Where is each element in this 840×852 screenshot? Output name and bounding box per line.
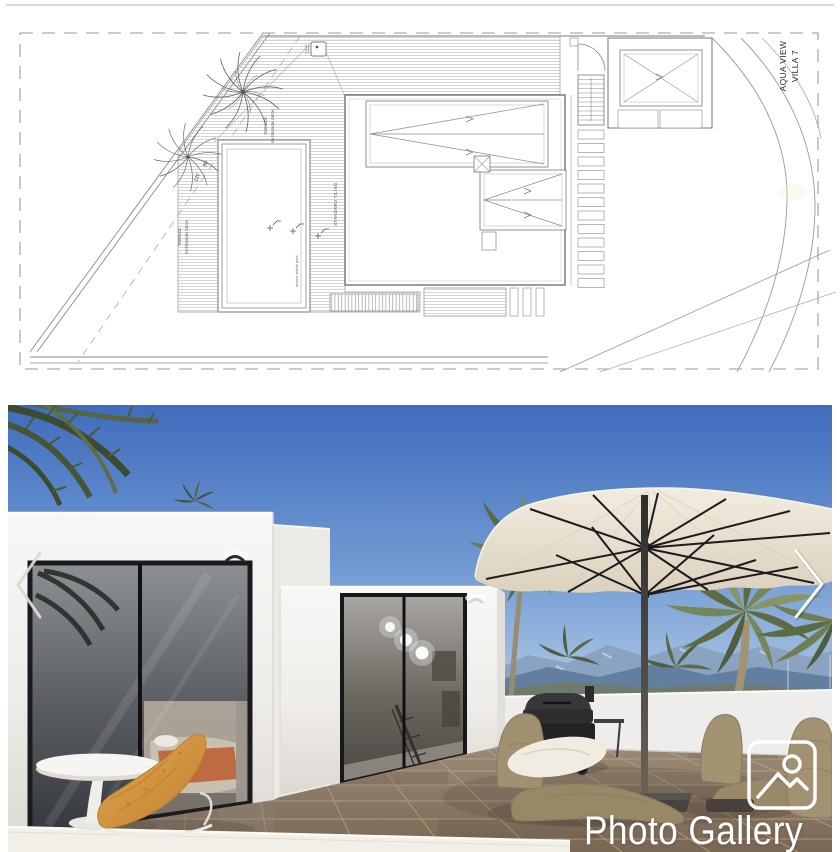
pool: bench inside pool [218,140,310,312]
main-house [345,95,566,285]
chevron-right-icon [796,551,822,617]
next-photo-button[interactable] [784,541,832,629]
svg-text:EXTENSION DECK: EXTENSION DECK [185,220,189,254]
standard-tiling-label: STANDARD TILING [333,182,338,225]
photo-gallery-button[interactable] [744,737,820,813]
garage [608,38,712,128]
entry-and-stairs [570,38,605,288]
listing-media-page: bench inside pool [0,0,840,852]
svg-text:TERRACE: TERRACE [264,116,268,135]
pool-note: bench inside pool [295,255,299,286]
svg-text:AQUA VIEW: AQUA VIEW [778,41,788,92]
svg-text:EXTENSION DECK: EXTENSION DECK [271,109,275,143]
svg-text:VILLA 7: VILLA 7 [790,50,800,82]
villa-render [8,405,832,852]
bottom-terrace-edge [30,357,548,363]
prev-photo-button[interactable] [8,541,54,629]
image-icon [749,742,815,808]
chevron-shadow [797,552,823,618]
photo-gallery-label[interactable]: Photo Gallery [584,809,803,852]
wall-lamp [222,550,248,561]
plan-smudge [779,184,807,200]
chevron-left-icon [18,553,40,617]
site-plan-image: bench inside pool [0,0,840,396]
gallery-photo[interactable]: Photo Gallery [8,405,832,852]
project-title: AQUA VIEW VILLA 7 [778,41,800,92]
umbrella [475,488,832,598]
svg-text:TERRACE: TERRACE [178,227,182,246]
